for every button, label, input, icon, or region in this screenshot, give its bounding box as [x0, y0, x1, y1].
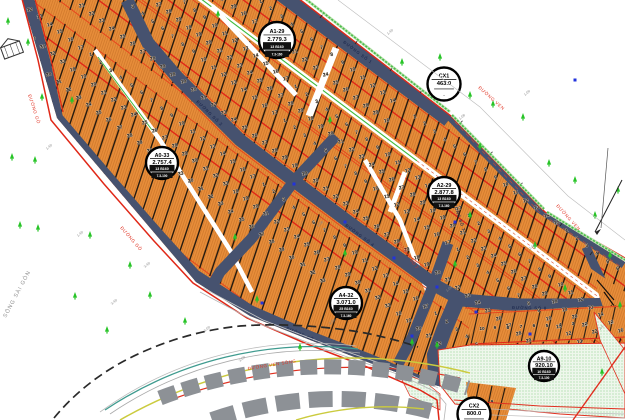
svg-text:7.3-160: 7.3-160 — [341, 314, 352, 318]
svg-text:ĐƯỜNG GÒ: ĐƯỜNG GÒ — [119, 225, 144, 252]
svg-text:SÔNG SÀI GÒN: SÔNG SÀI GÒN — [2, 269, 33, 319]
svg-text:7: 7 — [520, 324, 523, 330]
svg-text:8: 8 — [507, 325, 510, 331]
svg-text:13 B160: 13 B160 — [155, 167, 169, 171]
svg-text:1.40: 1.40 — [386, 28, 394, 36]
svg-text:13 B160: 13 B160 — [437, 197, 451, 201]
svg-text:2: 2 — [611, 319, 614, 325]
svg-text:3: 3 — [572, 321, 575, 327]
svg-text:25 B160: 25 B160 — [339, 307, 353, 311]
svg-text:3.00: 3.00 — [203, 325, 211, 333]
svg-text:A4-32: A4-32 — [339, 293, 354, 299]
svg-text:9: 9 — [494, 325, 497, 331]
svg-text:7.3-160: 7.3-160 — [439, 204, 450, 208]
svg-text:800.0: 800.0 — [467, 411, 482, 417]
svg-text:13 B160: 13 B160 — [270, 45, 284, 49]
svg-text:3.00: 3.00 — [238, 355, 246, 363]
svg-text:2.757.4: 2.757.4 — [152, 160, 172, 166]
svg-text:2: 2 — [585, 321, 588, 327]
svg-text:1.40: 1.40 — [45, 143, 53, 151]
svg-text:6: 6 — [533, 323, 536, 329]
svg-text:4: 4 — [559, 322, 562, 328]
svg-text:3.40: 3.40 — [110, 298, 118, 306]
svg-text:7.3-100: 7.3-100 — [539, 376, 550, 380]
svg-text:3.40: 3.40 — [143, 261, 151, 269]
svg-text:2.779.3: 2.779.3 — [267, 37, 287, 43]
svg-text:7.3-160: 7.3-160 — [272, 53, 283, 57]
svg-text:7.3-100: 7.3-100 — [157, 174, 168, 178]
svg-text:5: 5 — [546, 323, 549, 329]
svg-text:CX2: CX2 — [469, 404, 480, 410]
svg-text:2.877.8: 2.877.8 — [434, 190, 454, 196]
svg-text:1.40: 1.40 — [76, 230, 84, 238]
svg-text:A9-10: A9-10 — [537, 356, 552, 362]
svg-text:10: 10 — [479, 326, 485, 332]
svg-text:29: 29 — [19, 28, 26, 35]
svg-text:10 B160: 10 B160 — [537, 370, 551, 374]
svg-text:3.071.0: 3.071.0 — [336, 300, 355, 306]
svg-text:A1-29: A1-29 — [270, 29, 285, 35]
svg-text:ĐƯỜNG VEN: ĐƯỜNG VEN — [477, 84, 506, 111]
svg-text:9: 9 — [491, 399, 494, 405]
svg-text:27: 27 — [0, 12, 5, 19]
svg-text:A2-29: A2-29 — [437, 183, 452, 189]
svg-text:A0-33: A0-33 — [155, 153, 170, 159]
svg-text:ĐƯỜNG GÒ: ĐƯỜNG GÒ — [27, 93, 42, 124]
svg-text:1.09: 1.09 — [523, 89, 531, 97]
svg-text:1.08: 1.08 — [458, 113, 466, 121]
